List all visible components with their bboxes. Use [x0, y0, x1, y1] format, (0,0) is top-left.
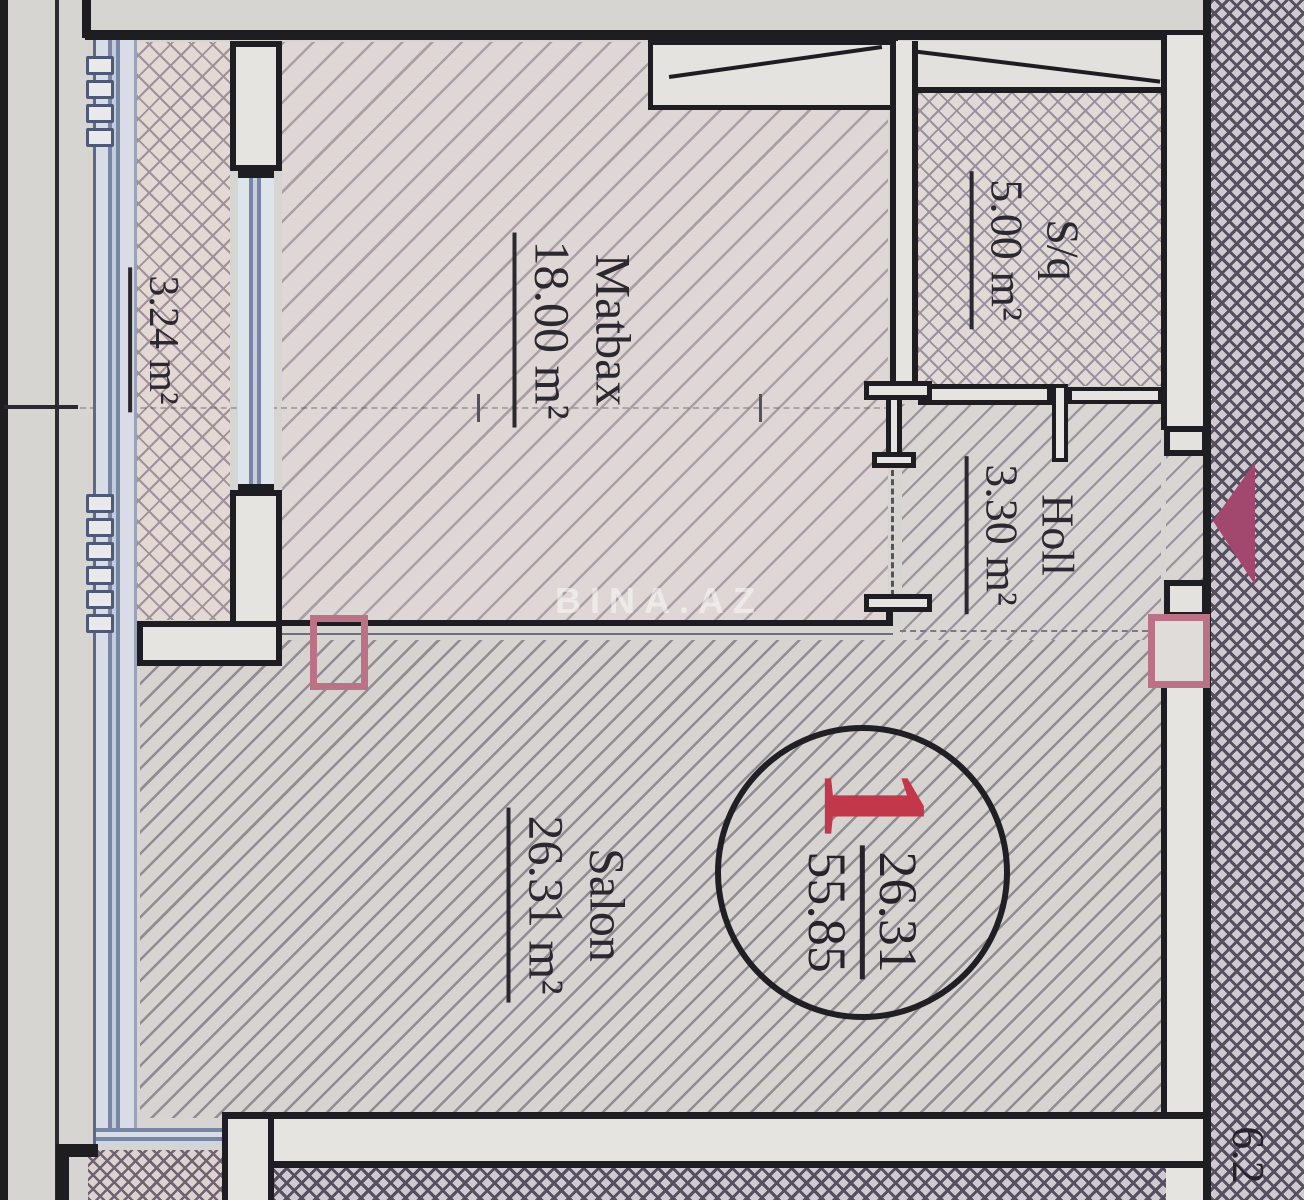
south-wall-pier: [222, 1112, 274, 1200]
hall-north-wall: [1068, 387, 1162, 404]
kitchen-hall-jamb-cap-a: [864, 381, 932, 400]
bathroom-south-wall: [918, 384, 1052, 405]
south-glazing-turn: [96, 1128, 228, 1146]
entrance-jamb-bottom: [1164, 580, 1208, 618]
adjacent-unit-label: 6.2: [1220, 1126, 1276, 1184]
floor-plan: BINA.AZ 3.24 m² Matbax 18.00 m² S/q 5.00…: [0, 0, 1304, 1200]
bathroom-name: S/q: [1035, 171, 1091, 329]
railing-post: [86, 566, 114, 585]
hall-area: 3.30 m²: [964, 456, 1029, 614]
outside-bottom-strip: [272, 1166, 1203, 1200]
axis-centerline: [80, 407, 900, 409]
balcony-kitchen-pier: [230, 41, 282, 171]
salon-label: Salon 26.31 m²: [507, 808, 638, 1003]
railing-post: [86, 614, 114, 633]
railing-post: [86, 494, 114, 513]
axis-tick-2: [759, 394, 762, 422]
east-wall-inner-edge-lower: [1161, 688, 1167, 1166]
frame-line-outer: [0, 0, 8, 1200]
column-marker-right: [1148, 614, 1210, 688]
bathroom-area: 5.00 m²: [969, 171, 1034, 329]
unit-badge-content: 1 26.31 55.85: [796, 766, 929, 979]
hall-name: Holl: [1030, 456, 1086, 614]
top-wall-line: [85, 30, 1208, 40]
railing-post: [86, 518, 114, 537]
kitchen-hall-wall-seg: [886, 400, 902, 456]
outside-right-area: [1211, 0, 1304, 1200]
balcony-area: 3.24 m²: [128, 267, 188, 412]
east-wall-inner-edge-upper: [1161, 35, 1167, 430]
entrance-floor: [1166, 456, 1203, 580]
unit-total-area: 55.85: [796, 845, 860, 979]
salon-area: 26.31 m²: [507, 808, 577, 1003]
column-marker-left: [310, 615, 368, 690]
l-wall-horizontal: [137, 621, 282, 666]
railing-post: [86, 80, 114, 99]
balcony-kitchen-window: [238, 171, 274, 491]
bathroom-label: S/q 5.00 m²: [969, 171, 1090, 329]
kitchen-hall-door-axis: [891, 470, 894, 596]
railing-post: [86, 56, 114, 75]
kitchen-hall-jamb-cap-c: [864, 594, 932, 612]
outside-bottom-left-patch: [88, 1150, 222, 1200]
wall-kitchen-bathroom: [890, 41, 918, 386]
axis-tick-1: [477, 394, 480, 422]
hall-salon-dashed-line: [900, 630, 1148, 632]
kitchen-hall-jamb-cap-b: [872, 452, 916, 468]
kitchen-name: Matbax: [583, 233, 644, 428]
railing-post: [86, 128, 114, 147]
salon-name: Salon: [577, 808, 638, 1003]
railing-post: [86, 590, 114, 609]
unit-areas-fraction: 26.31 55.85: [796, 845, 929, 979]
entrance-jamb-top: [1164, 426, 1208, 456]
kitchen-area: 18.00 m²: [513, 233, 583, 428]
railing-post: [86, 542, 114, 561]
balcony-label: 3.24 m²: [128, 267, 188, 412]
railing-post: [86, 104, 114, 123]
watermark: BINA.AZ: [555, 580, 764, 622]
hall-label: Holl 3.30 m²: [964, 456, 1085, 614]
top-wall-stub: [82, 0, 91, 38]
bathroom-door-jamb: [1052, 384, 1068, 462]
kitchen-label: Matbax 18.00 m²: [513, 233, 644, 428]
south-wall-band: [222, 1112, 1203, 1168]
window-glazing-lines: [249, 178, 261, 484]
unit-living-area: 26.31: [860, 845, 929, 979]
unit-number: 1: [821, 766, 929, 841]
frame-line-inner: [55, 0, 59, 1200]
axis-tick-left: [4, 405, 78, 409]
kitchen-salon-thin-line: [282, 633, 893, 635]
south-west-stub-v: [56, 1144, 69, 1200]
unit-badge: 1 26.31 55.85: [715, 725, 1010, 1020]
